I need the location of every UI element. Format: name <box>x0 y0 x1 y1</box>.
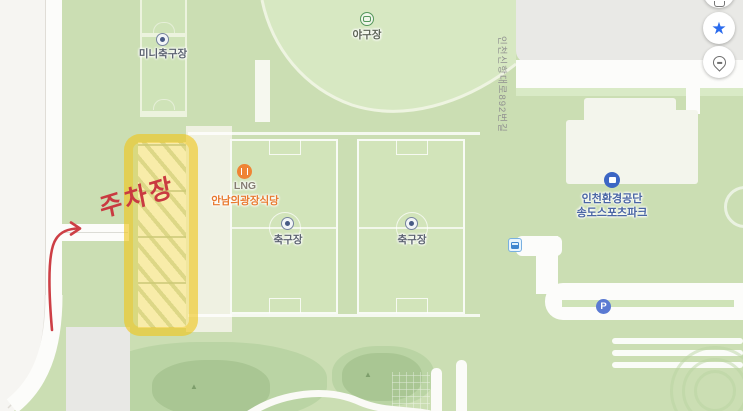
parking-icon[interactable]: P <box>596 299 611 314</box>
road-centerline <box>62 232 128 233</box>
path-line <box>188 314 480 317</box>
building-sports-park-wing2 <box>642 110 698 182</box>
location-pin-icon <box>710 53 728 71</box>
map-canvas[interactable]: ▲ ▲ 야구장 <box>0 0 743 411</box>
building-icon <box>609 177 616 183</box>
road-name-label: 인천신항대로892번길 <box>496 36 510 133</box>
tree-icon: ▲ <box>364 370 372 379</box>
organization-poi-icon[interactable] <box>604 172 620 188</box>
road-vertical-small <box>686 60 700 114</box>
parking-row <box>612 338 743 344</box>
bookmark-icon <box>714 1 725 7</box>
highlight-marker <box>124 134 198 336</box>
roundabout-ring <box>724 186 743 228</box>
favorite-star-button[interactable]: ★ <box>703 12 735 44</box>
path-stripe <box>431 368 442 411</box>
my-location-button[interactable] <box>703 46 735 78</box>
restaurant-label-line1: LNG <box>215 180 275 192</box>
restaurant-poi-icon[interactable] <box>237 164 252 179</box>
restaurant-label-line2: 안남의광장식당 <box>192 193 298 208</box>
baseball-label: 야구장 <box>332 27 402 42</box>
path-stripe <box>456 360 467 411</box>
soccer-right-poi-icon[interactable] <box>405 217 418 230</box>
roadside-stripe <box>516 88 743 96</box>
page-left-margin <box>0 0 45 411</box>
bus-stop-icon[interactable] <box>508 238 522 252</box>
mini-soccer-label: 미니축구장 <box>123 46 203 61</box>
small-court <box>255 60 270 122</box>
soccer-right-label: 축구장 <box>382 232 442 247</box>
soccer-left-poi-icon[interactable] <box>281 217 294 230</box>
tree-area-dense <box>152 360 270 411</box>
road-stub-v <box>536 236 558 294</box>
mini-soccer-poi-icon[interactable] <box>156 33 169 46</box>
fork-knife-icon <box>241 168 248 175</box>
star-icon: ★ <box>711 20 726 37</box>
tree-icon: ▲ <box>190 382 198 391</box>
road-median <box>562 300 734 307</box>
soccer-left-label: 축구장 <box>258 232 318 247</box>
gray-area-bottom-left <box>66 327 130 411</box>
path-line <box>188 132 480 135</box>
grid-pavement <box>392 372 430 411</box>
road-vertical-left <box>45 0 62 300</box>
organization-label-line2: 송도스포츠파크 <box>557 204 667 220</box>
baseball-poi-icon[interactable] <box>360 12 374 26</box>
